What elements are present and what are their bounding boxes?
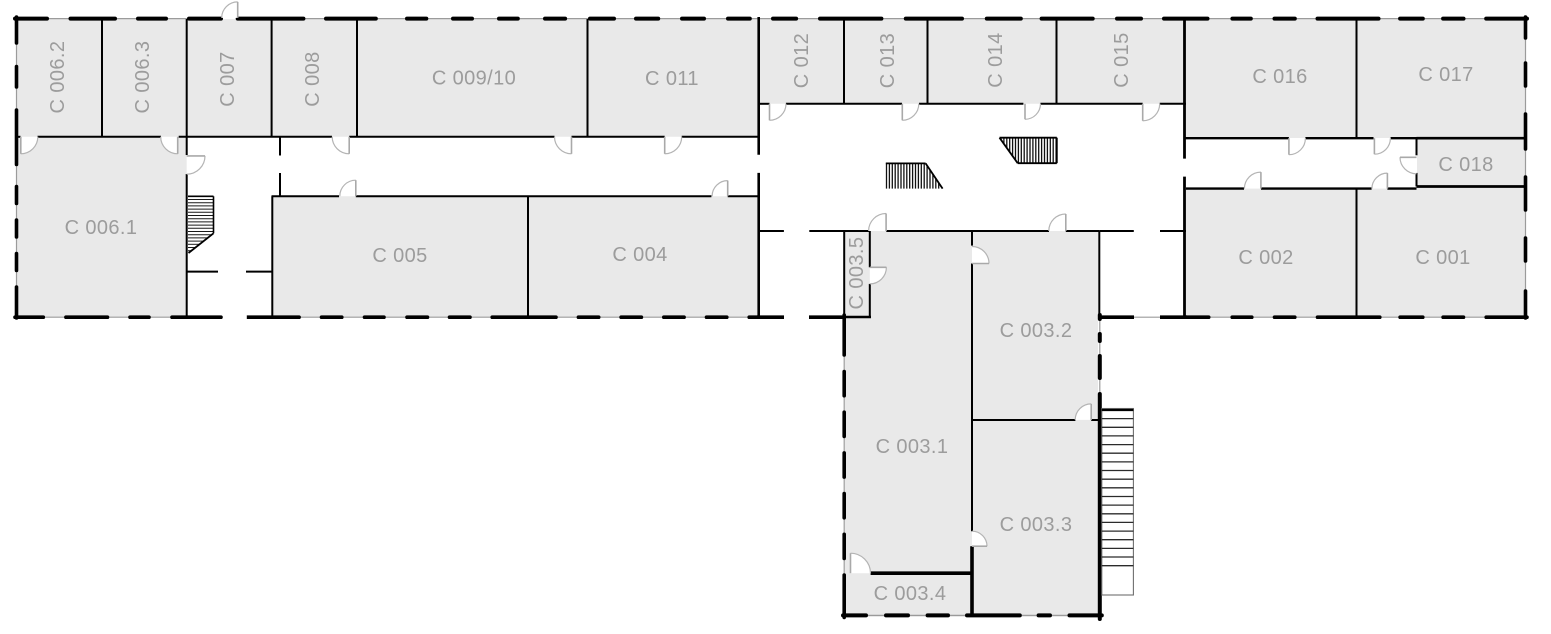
svg-text:C 003.2: C 003.2 bbox=[1000, 320, 1073, 342]
svg-text:C 011: C 011 bbox=[645, 68, 699, 90]
svg-text:C 018: C 018 bbox=[1438, 154, 1493, 176]
svg-text:C 003.4: C 003.4 bbox=[874, 583, 947, 605]
svg-text:C 006.1: C 006.1 bbox=[65, 217, 138, 239]
svg-text:C 002: C 002 bbox=[1238, 247, 1293, 269]
svg-text:C 006.3: C 006.3 bbox=[132, 41, 154, 114]
svg-text:C 001: C 001 bbox=[1415, 247, 1470, 269]
svg-text:C 004: C 004 bbox=[612, 244, 667, 266]
svg-text:C 003.5: C 003.5 bbox=[846, 237, 868, 310]
svg-text:C 015: C 015 bbox=[1111, 32, 1133, 87]
svg-text:C 016: C 016 bbox=[1252, 66, 1307, 88]
svg-text:C 009/10: C 009/10 bbox=[432, 68, 516, 90]
svg-text:C 003.3: C 003.3 bbox=[1000, 514, 1073, 536]
svg-text:C 012: C 012 bbox=[791, 33, 813, 88]
svg-text:C 008: C 008 bbox=[302, 51, 324, 106]
svg-text:C 006.2: C 006.2 bbox=[47, 41, 69, 114]
svg-text:C 014: C 014 bbox=[985, 32, 1007, 87]
svg-text:C 007: C 007 bbox=[217, 51, 239, 106]
svg-text:C 017: C 017 bbox=[1418, 64, 1473, 86]
svg-text:C 003.1: C 003.1 bbox=[876, 436, 949, 458]
svg-text:C 005: C 005 bbox=[372, 245, 427, 267]
svg-text:C 013: C 013 bbox=[877, 33, 899, 88]
